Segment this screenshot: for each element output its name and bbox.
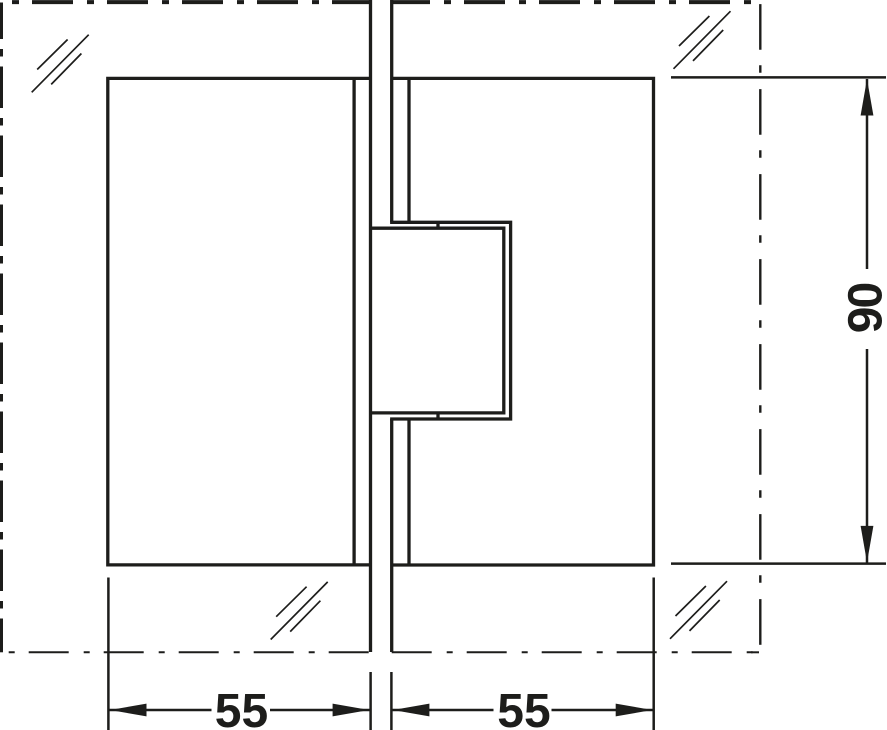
svg-text:55: 55 (215, 685, 268, 730)
svg-text:55: 55 (497, 685, 550, 730)
svg-text:90: 90 (840, 284, 887, 334)
